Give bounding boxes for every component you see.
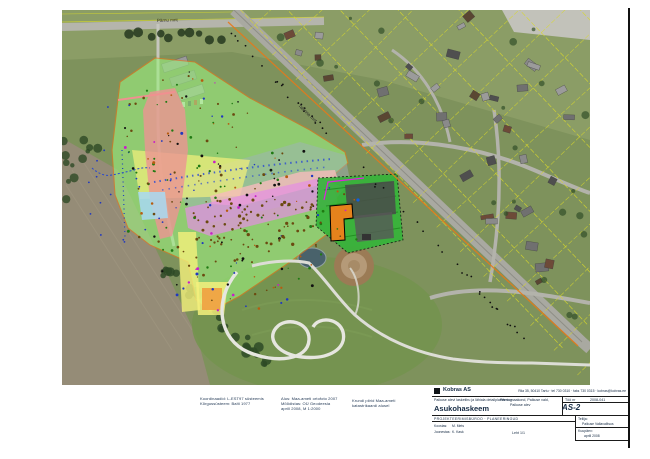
drawing-title: Asukohaskeem <box>434 404 489 413</box>
author-label: Koostas: <box>434 424 447 428</box>
work-number-label: Töö nr <box>565 398 575 402</box>
zone-lightblue <box>138 192 168 220</box>
date-value: aprill 2008 <box>584 434 600 438</box>
drawing-sheet: Pärnu mnt Tallinna mnt Koordinaadid: L-E… <box>0 0 650 459</box>
titleblock-rule <box>432 415 628 416</box>
note-cadastre: Krundi piirid Maa-ameti katastrikaardi a… <box>352 398 412 408</box>
street-label-top: Pärnu mnt <box>157 17 179 23</box>
site-plan-map: Pärnu mnt Tallinna mnt <box>62 10 590 385</box>
titleblock-rule <box>575 427 628 428</box>
paved-pad-2 <box>354 212 394 242</box>
drafter-label: Joonestas: <box>434 430 450 434</box>
author-value: M. Mets <box>452 424 464 428</box>
client-value: Paikuse Vallavalitsus <box>582 422 614 426</box>
note-line: aprill 2008, M 1:2000 <box>281 406 341 411</box>
company-contacts: Riia 35, 50410 Tartu · tel 730 0310 · fa… <box>490 389 626 393</box>
location-line1: Pärnu maakond, Paikuse vald, <box>500 398 549 402</box>
location-line2: Paikuse alev <box>510 403 530 407</box>
sheet-border <box>628 8 630 448</box>
drafter-value: K. Kask <box>452 430 464 434</box>
date-label: Kuupäev: <box>578 429 593 433</box>
company-name: Kobras AS <box>443 387 471 393</box>
work-number-value: 2008-041 <box>590 398 605 402</box>
zone-orange-patch <box>202 288 222 310</box>
drawing-number: AS-2 <box>562 403 580 412</box>
note-line: Kõrgussüsteem: Balti 1977 <box>200 401 264 406</box>
note-coordinates: Koordinaadid: L-EST97 süsteemis Kõrgussü… <box>200 396 264 406</box>
titleblock-rule <box>575 440 628 441</box>
title-block: Kobras AS Riia 35, 50410 Tartu · tel 730… <box>432 384 628 448</box>
company-logo <box>434 388 440 394</box>
note-line: katastrikaardi alusel <box>352 403 412 408</box>
titleblock-rule <box>432 421 575 422</box>
note-basemap: Alus: Maa-ameti ortofoto 2007 Mõõdistas:… <box>281 396 341 411</box>
client-label: Tellija: <box>578 417 588 421</box>
circular-arena <box>334 246 374 286</box>
sheet-number: Leht 1/1 <box>512 431 525 435</box>
